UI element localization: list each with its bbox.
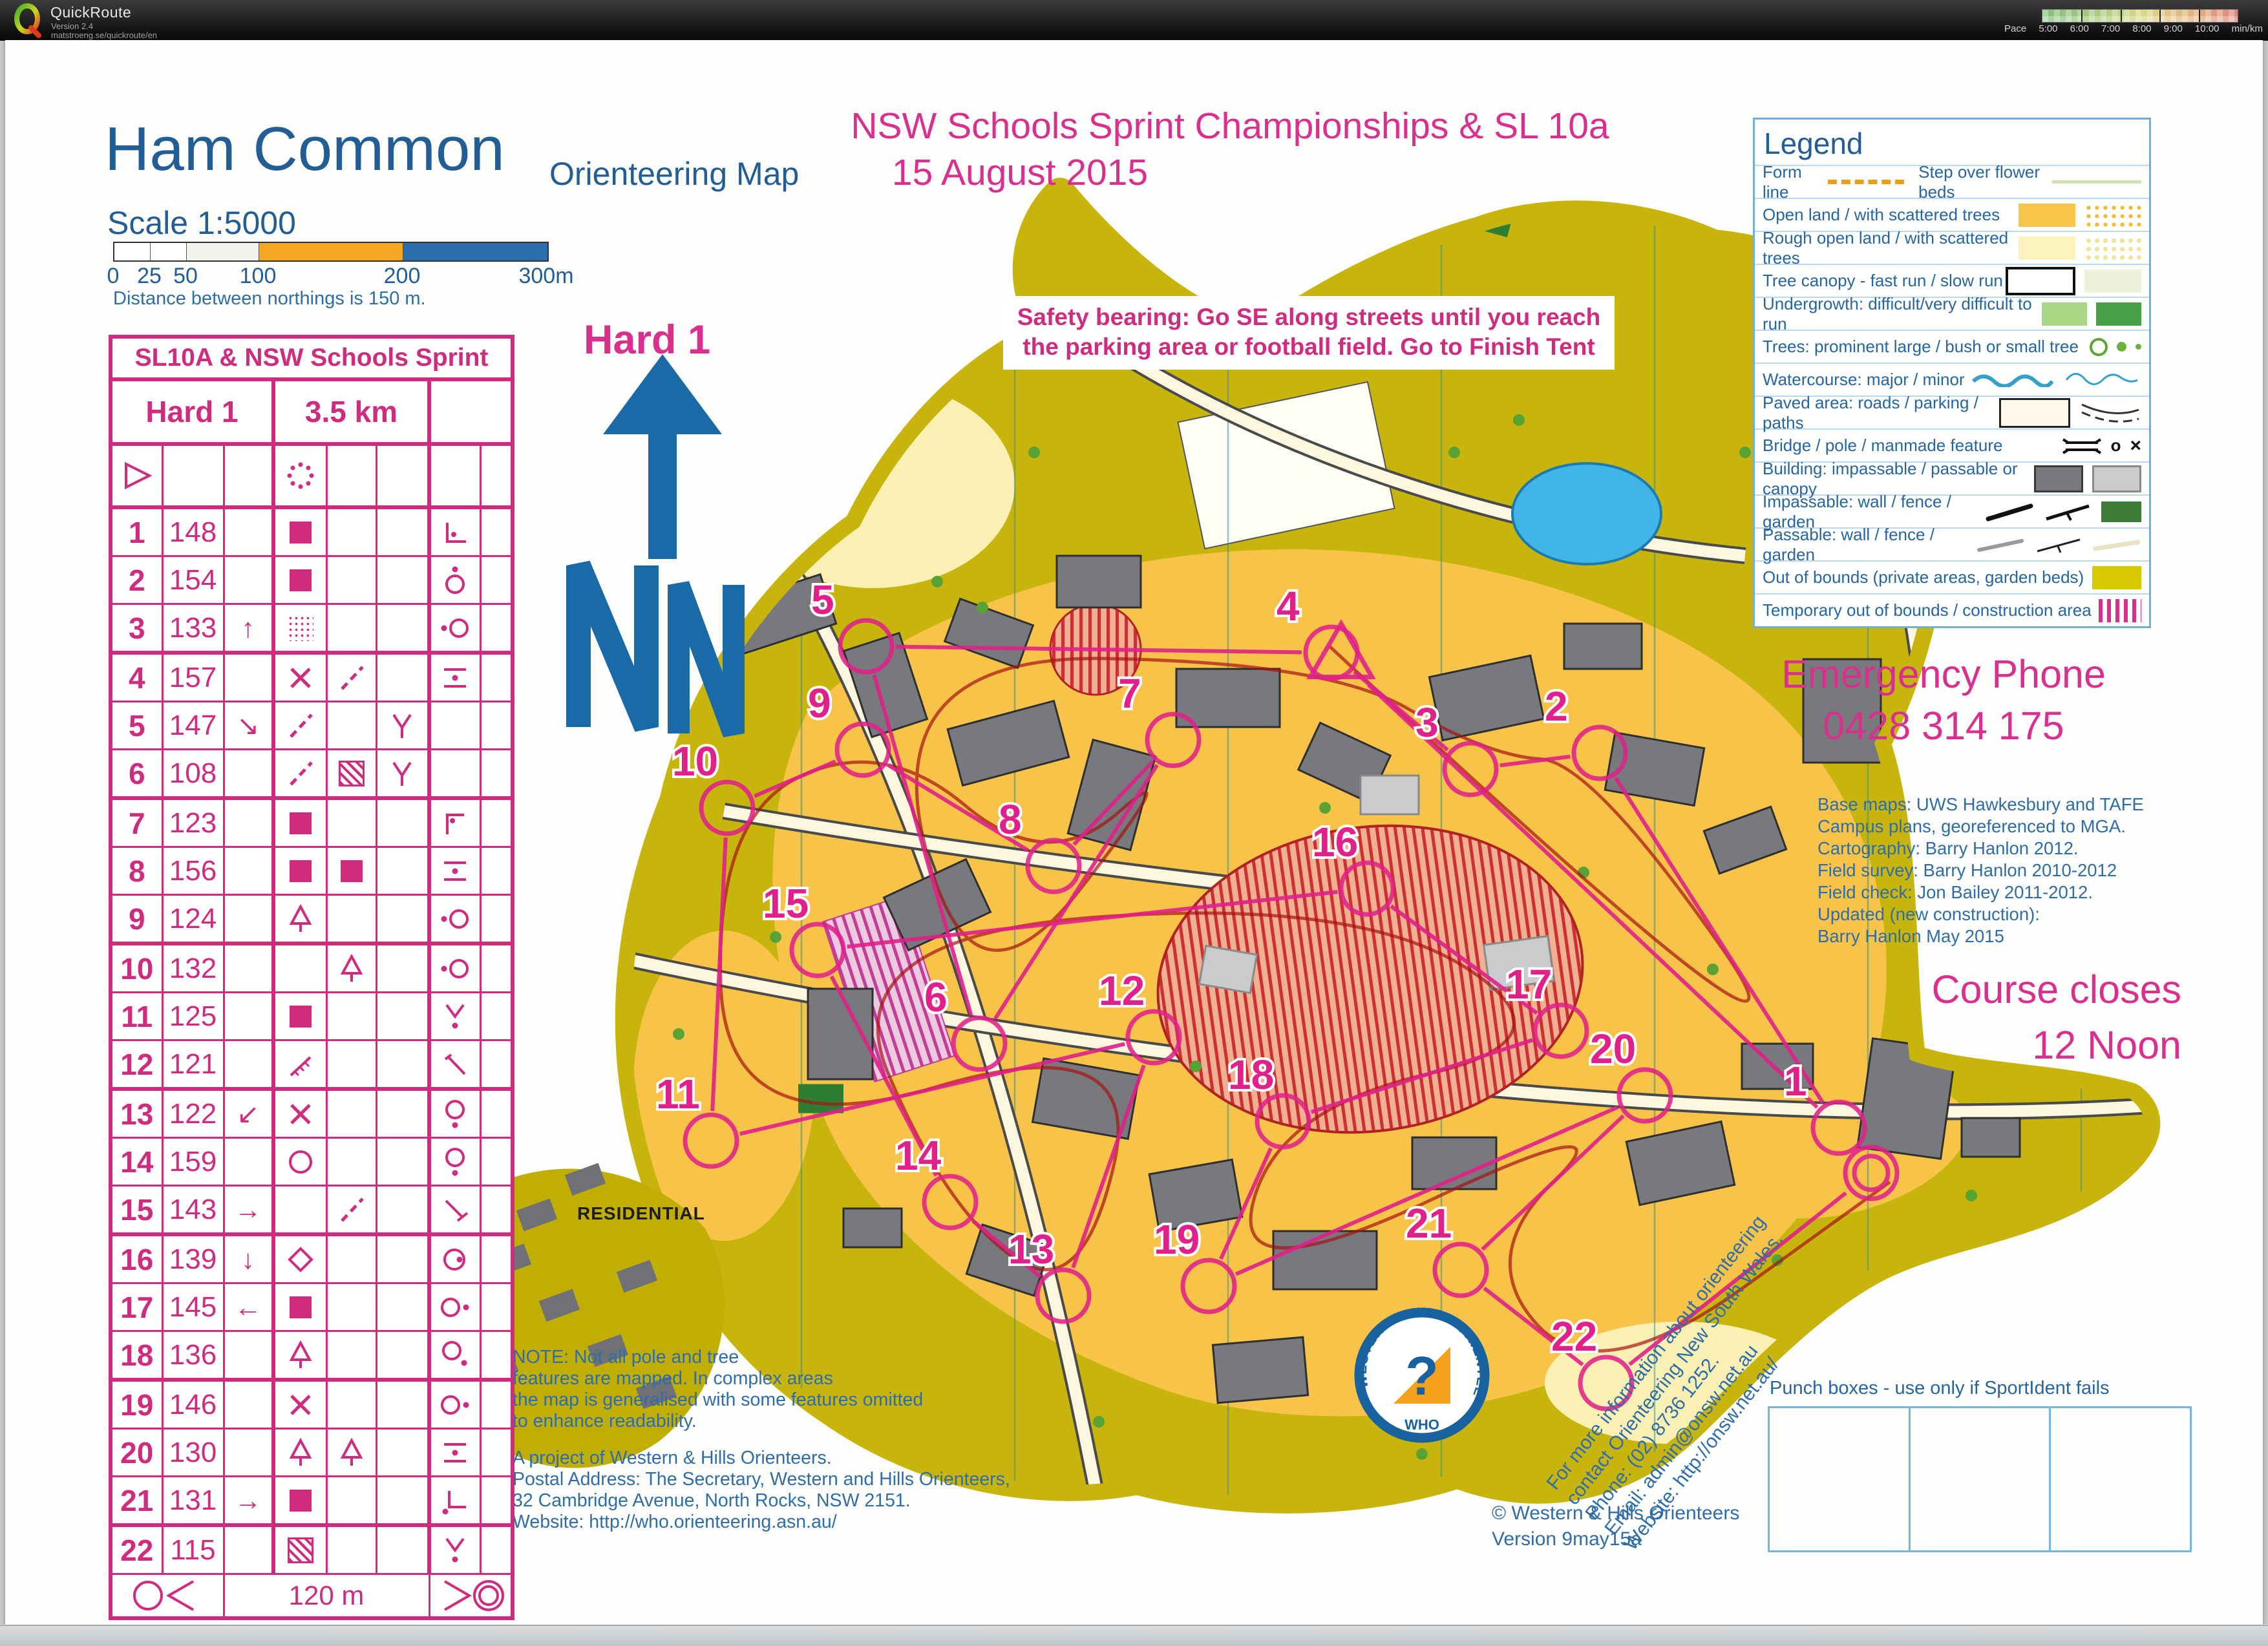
legend-swatches	[2052, 180, 2141, 184]
scale-tick-label: 25	[137, 264, 162, 289]
emergency-phone-label: Emergency Phone	[1763, 651, 2125, 697]
legend-row: Undergrowth: difficult/very difficult to…	[1755, 297, 2149, 330]
control-number-label: 16	[1312, 819, 1358, 865]
emergency-phone-number: 0428 314 175	[1763, 703, 2125, 748]
legend-row: Out of bounds (private areas, garden bed…	[1755, 560, 2149, 593]
legend-swatches	[2006, 267, 2141, 295]
legend-label: Paved area: roads / parking / paths	[1763, 393, 1999, 433]
card-title: SL10A & NSW Schools Sprint	[111, 337, 513, 379]
legend-label: Bridge / pole / manmade feature	[1763, 436, 2002, 456]
card-start-row	[111, 444, 513, 507]
control-number-label: 13	[1008, 1226, 1054, 1272]
legend-row: Temporary out of bounds / construction a…	[1755, 593, 2149, 626]
legend-row: Watercourse: major / minor	[1755, 363, 2149, 396]
mapping-note: NOTE: Not all pole and treefeatures are …	[513, 1347, 923, 1432]
control-number-label: 22	[1551, 1313, 1597, 1360]
card-control-row: 18136	[111, 1331, 513, 1380]
card-control-row: 2154	[111, 556, 513, 604]
credit-line: Updated (new construction):	[1818, 903, 2144, 925]
legend-row: Rough open land / with scattered trees	[1755, 231, 2149, 264]
safety-line: the parking area or football field. Go t…	[1003, 332, 1615, 362]
horizontal-scrollbar[interactable]	[0, 1625, 2268, 1646]
legend-label: Form line	[1763, 162, 1820, 202]
legend-row: Building: impassable / passable or canop…	[1755, 461, 2149, 494]
control-number-label: 1	[1784, 1058, 1807, 1104]
card-control-row: 8156	[111, 847, 513, 895]
legend-swatches	[1828, 180, 1904, 184]
legend-swatches	[2090, 338, 2141, 356]
map-subtitle: Orienteering Map	[549, 155, 799, 193]
course-closes-label: Course closes	[1897, 967, 2181, 1012]
legend-row: Passable: wall / fence / garden	[1755, 527, 2149, 560]
safety-bearing-note: Safety bearing: Go SE along streets unti…	[1003, 296, 1615, 370]
course-label: Hard 1	[584, 317, 710, 363]
legend-swatches	[2099, 599, 2141, 622]
scale-tick-label: 300m	[518, 264, 573, 289]
control-number-label: 19	[1154, 1216, 1200, 1263]
control-number-label: 5	[811, 576, 834, 623]
legend-label: Tree canopy - fast run / slow run	[1763, 271, 2003, 291]
legend-label: Undergrowth: difficult/very difficult to…	[1763, 294, 2042, 334]
legend-label: Out of bounds (private areas, garden bed…	[1763, 567, 2084, 587]
control-number-label: 17	[1506, 961, 1552, 1008]
svg-text:?: ?	[1405, 1345, 1438, 1406]
card-control-row: 3133↑	[111, 604, 513, 653]
scale-label: Scale 1:5000	[107, 204, 296, 242]
credit-line: Cartography: Barry Hanlon 2012.	[1818, 838, 2144, 860]
control-number-label: 2	[1545, 683, 1568, 730]
control-description-card: SL10A & NSW Schools Sprint Hard 1 3.5 km…	[109, 335, 514, 1620]
legend-label: Open land / with scattered trees	[1763, 205, 2000, 225]
map-credits: Base maps: UWS Hawkesbury and TAFECampus…	[1818, 794, 2144, 947]
control-number-label: 15	[763, 880, 809, 927]
safety-line: Safety bearing: Go SE along streets unti…	[1003, 302, 1615, 332]
card-control-row: 20130	[111, 1429, 513, 1477]
card-control-row: 5147↘	[111, 702, 513, 750]
card-control-row: 10132	[111, 944, 513, 993]
note-line: features are mapped. In complex areas	[513, 1368, 923, 1389]
svg-text:WHO: WHO	[1404, 1417, 1439, 1433]
legend-row: Open land / with scattered trees	[1755, 198, 2149, 231]
north-arrow-icon	[578, 354, 734, 733]
card-control-row: 22115	[111, 1525, 513, 1574]
event-title: NSW Schools Sprint Championships & SL 10…	[794, 105, 1666, 147]
card-control-row: 17145←	[111, 1283, 513, 1331]
card-control-row: 21131→	[111, 1477, 513, 1526]
legend-row: Form lineStep over flower beds	[1755, 165, 2149, 198]
event-date: 15 August 2015	[813, 151, 1227, 194]
note-line: NOTE: Not all pole and tree	[513, 1347, 923, 1368]
card-control-row: 9124	[111, 895, 513, 944]
control-number-label: 10	[672, 738, 718, 785]
credit-line: Campus plans, georeferenced to MGA.	[1818, 816, 2144, 838]
control-number-label: 9	[808, 680, 831, 726]
map-version: Version 9may15a	[1492, 1526, 1739, 1552]
project-line: 32 Cambridge Avenue, North Rocks, NSW 21…	[513, 1490, 1010, 1512]
course-closes-time: 12 Noon	[1897, 1022, 2181, 1068]
card-control-row: 11125	[111, 993, 513, 1040]
legend-swatches	[1971, 372, 2141, 388]
scale-tick-label: 200	[384, 264, 421, 289]
project-line: Postal Address: The Secretary, Western a…	[513, 1469, 1010, 1490]
project-line: A project of Western & Hills Orienteers.	[513, 1448, 1010, 1469]
control-number-label: 3	[1415, 699, 1439, 746]
control-number-label: 20	[1590, 1026, 1636, 1072]
quickroute-window: QuickRoute Version 2.4 matstroeng.se/qui…	[0, 0, 2268, 1646]
control-number-label: 4	[1277, 583, 1300, 629]
punch-cell	[2051, 1408, 2190, 1550]
card-length: 3.5 km	[273, 379, 429, 444]
note-line: the map is generalised with some feature…	[513, 1389, 923, 1411]
residential-label: RESIDENTIAL	[577, 1203, 705, 1224]
northings-note: Distance between northings is 150 m.	[113, 288, 426, 310]
legend-swatches	[2019, 237, 2141, 260]
credit-line: Field survey: Barry Hanlon 2010-2012	[1818, 860, 2144, 881]
note-line: to enhance readability.	[513, 1411, 923, 1432]
scale-bar	[113, 242, 549, 262]
punch-cell	[1911, 1408, 2051, 1550]
legend-label: Trees: prominent large / bush or small t…	[1763, 337, 2079, 357]
control-number-label: 14	[895, 1132, 942, 1179]
control-number-label: 6	[924, 974, 948, 1020]
control-number-label: 12	[1099, 967, 1145, 1014]
legend-row: Trees: prominent large / bush or small t…	[1755, 330, 2149, 363]
copyright-line: © Western & Hills Orienteers	[1492, 1501, 1739, 1526]
copyright-block: © Western & Hills Orienteers Version 9ma…	[1492, 1501, 1739, 1552]
credit-line: Base maps: UWS Hawkesbury and TAFE	[1818, 794, 2144, 816]
legend-row: Paved area: roads / parking / paths	[1755, 396, 2149, 428]
card-control-row: 1148	[111, 507, 513, 556]
project-note: A project of Western & Hills Orienteers.…	[513, 1448, 1010, 1533]
card-control-row: 13122↙	[111, 1089, 513, 1138]
legend-row: Bridge / pole / manmade featureo×	[1755, 428, 2149, 461]
card-control-row: 15143→	[111, 1186, 513, 1235]
legend-swatches	[1976, 534, 2141, 555]
scale-bar-labels: 02550100200300m	[0, 264, 582, 290]
legend-row: Impassable: wall / fence / garden	[1755, 494, 2149, 527]
card-course: Hard 1	[111, 379, 273, 444]
legend-swatches	[1985, 501, 2141, 523]
legend-label: Rough open land / with scattered trees	[1763, 228, 2019, 268]
legend-swatches: o×	[2062, 435, 2141, 457]
legend-row: Tree canopy - fast run / slow run	[1755, 264, 2149, 297]
legend-swatches	[1999, 398, 2141, 428]
control-number-label: 18	[1228, 1051, 1274, 1098]
control-number-label: 8	[999, 796, 1022, 843]
legend-swatches	[2092, 566, 2141, 589]
credit-line: Barry Hanlon May 2015	[1818, 925, 2144, 947]
punch-boxes	[1768, 1406, 2192, 1552]
card-control-row: 16139↓	[111, 1234, 513, 1283]
control-number-label: 21	[1406, 1200, 1452, 1247]
legend-swatches	[2034, 465, 2141, 492]
scale-tick-label: 50	[173, 264, 198, 289]
credit-line: Field check: Jon Bailey 2011-2012.	[1818, 881, 2144, 903]
card-control-row: 7123	[111, 798, 513, 847]
project-line: Website: http://who.orienteering.asn.au/	[513, 1512, 1010, 1533]
map-title: Ham Common	[105, 114, 505, 185]
card-control-row: 4157	[111, 653, 513, 702]
legend-title: Legend	[1755, 120, 2149, 165]
legend-label: Step over flower beds	[1918, 162, 2052, 202]
card-finish-row: 120 m	[111, 1574, 513, 1619]
punch-cell	[1770, 1408, 1911, 1550]
card-control-row: 6108	[111, 750, 513, 799]
card-control-row: 12121	[111, 1040, 513, 1090]
punch-box-label: Punch boxes - use only if SportIdent fai…	[1770, 1378, 2110, 1399]
legend-swatches	[2019, 204, 2141, 227]
control-number-label: 7	[1118, 670, 1141, 717]
legend-swatches	[2042, 302, 2141, 326]
card-control-row: 14159	[111, 1138, 513, 1186]
control-number-label: 11	[656, 1071, 700, 1117]
legend-panel: Legend Form lineStep over flower bedsOpe…	[1753, 118, 2151, 628]
legend-label: Temporary out of bounds / construction a…	[1763, 600, 2092, 620]
legend-label: Passable: wall / fence / garden	[1763, 525, 1976, 565]
legend-label: Watercourse: major / minor	[1763, 370, 1965, 390]
scale-tick-label: 0	[107, 264, 120, 289]
scale-tick-label: 100	[240, 264, 277, 289]
card-control-row: 19146	[111, 1380, 513, 1429]
